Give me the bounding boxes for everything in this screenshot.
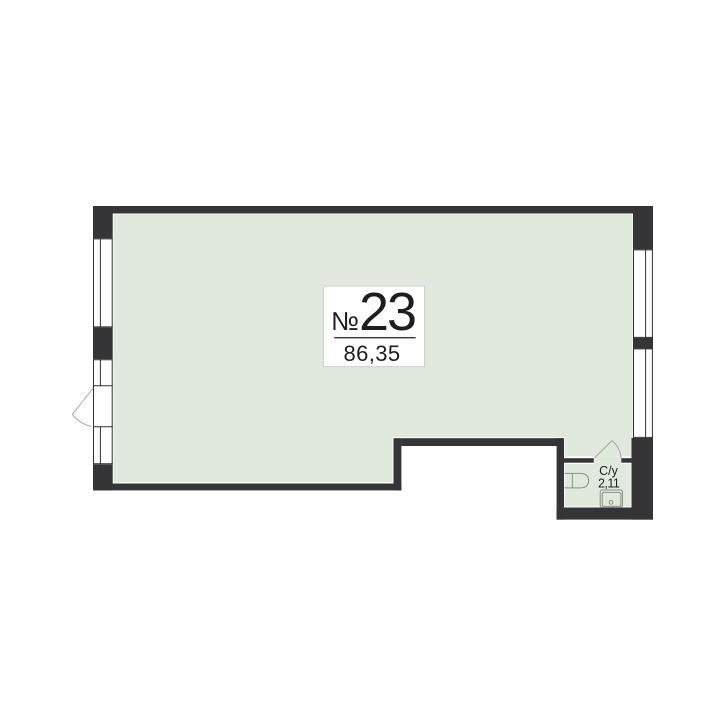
svg-text:№: № <box>331 306 359 336</box>
svg-text:86,35: 86,35 <box>343 341 400 366</box>
svg-text:2,11: 2,11 <box>598 477 620 491</box>
svg-text:23: 23 <box>359 282 415 342</box>
